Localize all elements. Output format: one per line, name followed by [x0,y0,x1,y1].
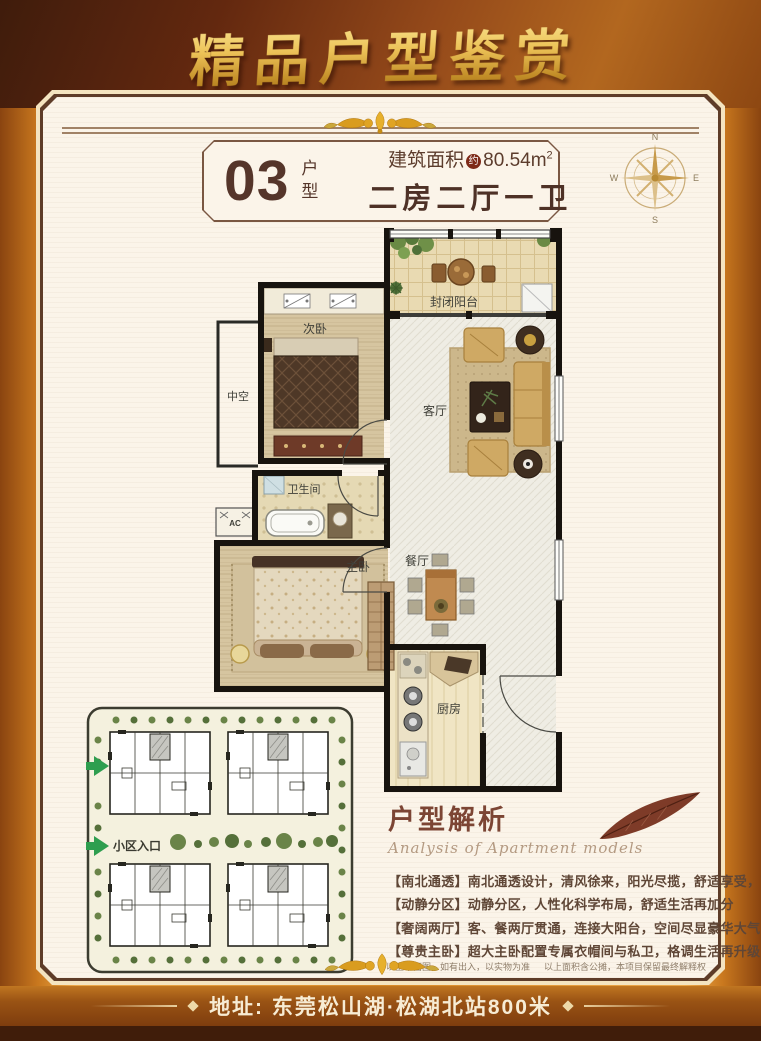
footer-dark-strip [0,1026,761,1041]
unit-number-suffix: 户型 [301,158,318,204]
entrance-label: 小区入口 [113,838,161,853]
coffee-table [470,382,510,432]
label-living-room: 客厅 [423,403,447,418]
compass-icon: N S W E [609,132,701,224]
compass-east-label: E [693,173,699,183]
compass-west-label: W [610,173,619,183]
building-block [226,730,330,816]
building-block [108,862,212,948]
area-line: 建筑面积约80.54m2 [368,145,572,172]
gold-flourish-bottom-icon [322,952,442,978]
label-kitchen: 厨房 [437,701,461,716]
label-balcony: 封闭阳台 [430,294,478,309]
building-block [226,862,330,948]
footer-address-bar: 地址: 东莞松山湖·松湖北站800米 [0,986,761,1026]
wardrobe-master [368,582,394,670]
analysis-point: 【动静分区】动静分区，人性化科学布局，舒适生活再加分 [388,893,706,916]
analysis-section: 户型解析 Analysis of Apartment models 【南北通透】… [388,798,706,964]
label-ac: AC [229,519,241,528]
footer-line-left [91,1005,177,1007]
footer-line-right [584,1005,670,1007]
footer-diamond-left-icon [187,1000,198,1011]
analysis-subtitle: Analysis of Apartment models [388,839,706,857]
compass-north-label: N [652,132,659,142]
poster-page: 精品户型鉴赏 03 户型 建筑面积约80 [0,0,761,1041]
area-label: 建筑面积 [388,150,464,171]
area-superscript: 2 [547,150,553,162]
label-second-bedroom: 次卧 [303,322,327,336]
label-void: 中空 [227,389,249,403]
bed-secondary [262,338,362,456]
compass-south-label: S [652,215,658,224]
analysis-point: 【奢阔两厅】客、餐两厅贯通，连接大阳台，空间尽显豪华大气 [388,917,706,940]
footer-diamond-right-icon [562,1000,573,1011]
unit-number: 03 [224,153,289,210]
analysis-point: 【南北通透】南北通透设计，清风徐来，阳光尽揽，舒适享受，高人一等 [388,870,706,893]
label-dining-room: 餐厅 [405,553,429,568]
disclaimer-part2: 以上面积含公摊，本项目保留最终解释权 [544,960,706,973]
area-value: 80.54m [483,150,546,171]
layout-text: 二房二厅一卫 [368,175,572,217]
label-bathroom: 卫生间 [288,482,321,496]
closet-second-bedroom [264,288,384,314]
feather-icon [592,788,707,844]
approx-badge: 约 [466,154,481,169]
label-master-bedroom: 主卧 [346,560,370,574]
unit-info-box: 03 户型 建筑面积约80.54m2 二房二厅一卫 [202,140,560,222]
siteplan-diagram: 小区入口 [86,706,354,974]
page-title: 精品户型鉴赏 [177,11,583,98]
building-block [108,730,212,816]
gold-flourish-top-icon [314,110,446,140]
footer-address: 地址: 东莞松山湖·松湖北站800米 [209,991,552,1021]
